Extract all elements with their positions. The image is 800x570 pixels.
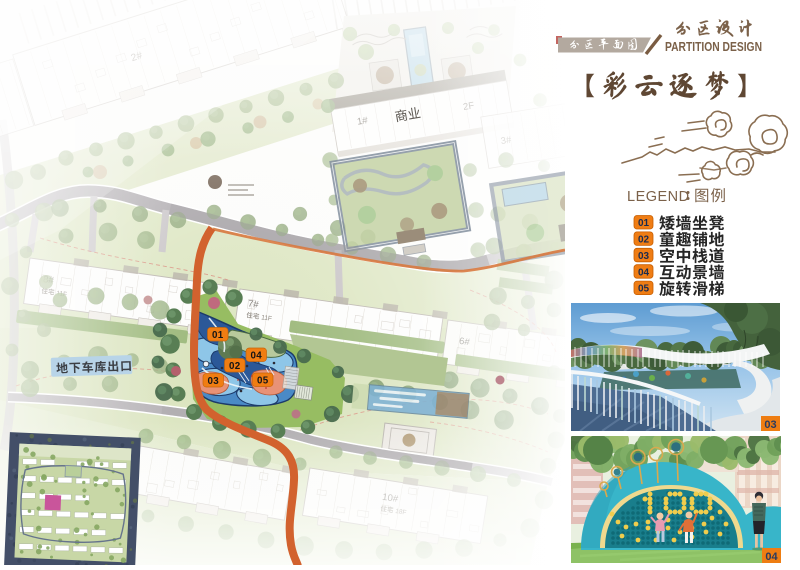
svg-text:02: 02 <box>229 361 241 372</box>
svg-text:03: 03 <box>638 251 650 262</box>
svg-text:05: 05 <box>638 284 650 295</box>
svg-text:04: 04 <box>765 551 778 563</box>
svg-text:04: 04 <box>251 351 263 362</box>
svg-text:01: 01 <box>212 330 224 341</box>
svg-text:04: 04 <box>638 267 650 278</box>
svg-text:05: 05 <box>257 376 269 387</box>
svg-text:03: 03 <box>764 419 776 431</box>
svg-text:PARTITION DESIGN: PARTITION DESIGN <box>665 39 762 54</box>
svg-text:LEGEND: LEGEND <box>627 189 690 205</box>
svg-text:02: 02 <box>638 235 650 246</box>
svg-text:03: 03 <box>208 376 220 387</box>
svg-text:01: 01 <box>638 218 650 229</box>
